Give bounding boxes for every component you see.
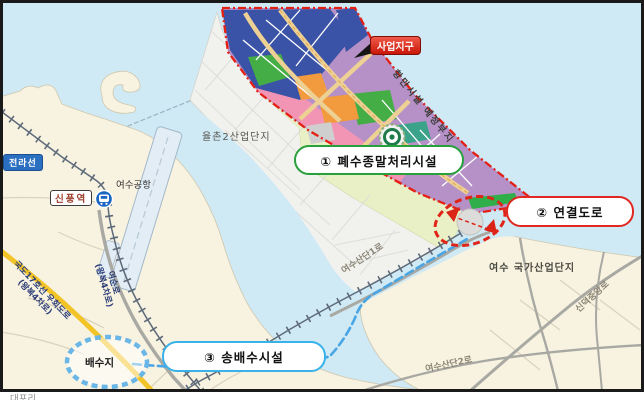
station-icon: [96, 191, 113, 208]
yeosu-airport-label: 여수공항: [116, 177, 151, 191]
facility1-label: ① 폐수종말처리시설: [294, 145, 464, 175]
reservoir-label: 배수지: [85, 355, 114, 370]
facility3-label: ③ 송배수시설: [162, 341, 326, 372]
map-screenshot: 사업지구 항만시설 예정부지 ① 폐수종말처리시설 ② 연결도로 ③ 송배수시설…: [0, 0, 644, 400]
jeolla-line-badge: 전라선: [3, 154, 43, 171]
daepo-ri-label: 대포리: [10, 391, 36, 400]
project-district-badge: 사업지구: [370, 36, 421, 55]
yulchon2-label: 율촌2산업단지: [202, 128, 271, 143]
national-complex-label: 여수 국가산업단지: [489, 259, 575, 274]
facility2-label: ② 연결도로: [506, 196, 634, 227]
sinpung-station-badge: 신풍역: [50, 190, 92, 206]
